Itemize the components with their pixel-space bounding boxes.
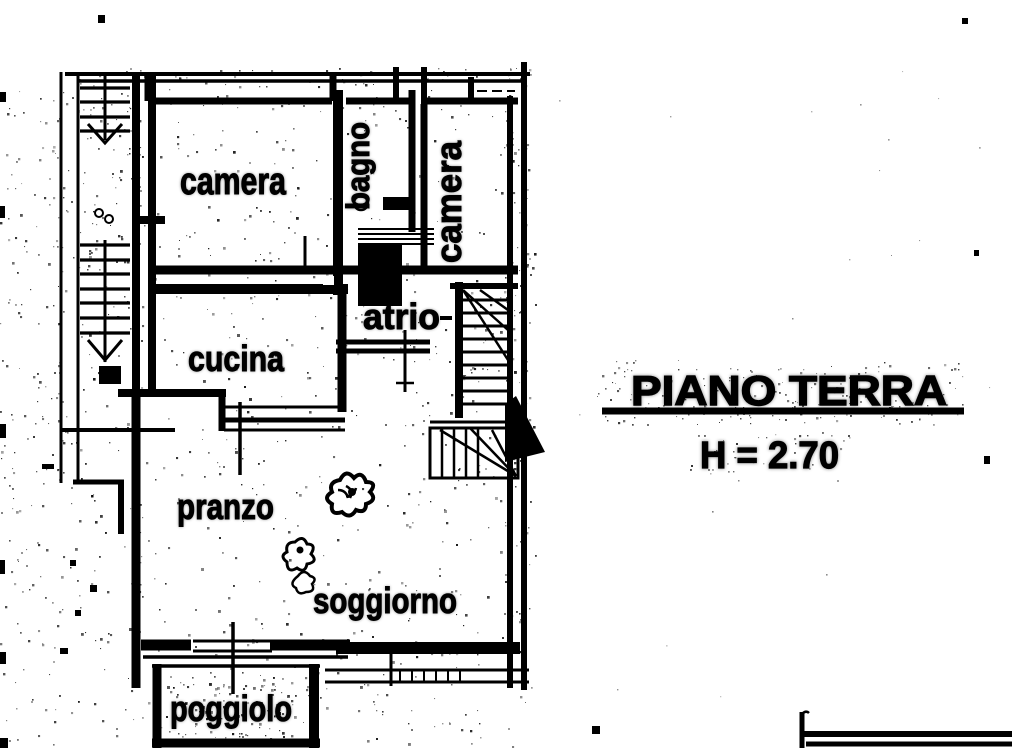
svg-text:pranzo: pranzo (177, 486, 274, 527)
svg-text:soggiorno: soggiorno (313, 580, 457, 621)
svg-text:H = 2.70: H = 2.70 (700, 435, 839, 477)
svg-text:camera: camera (180, 161, 287, 203)
svg-text:cucina: cucina (188, 338, 285, 379)
svg-text:camera: camera (428, 140, 469, 263)
